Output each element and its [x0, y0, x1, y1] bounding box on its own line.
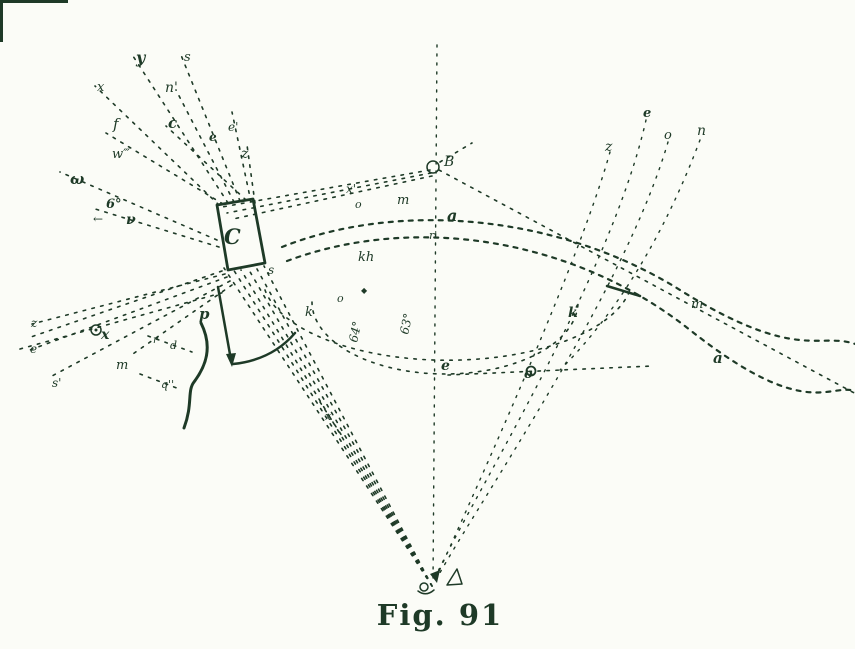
label-x: x — [100, 327, 110, 343]
rays-from-top-right — [434, 120, 700, 580]
label-f: f — [112, 115, 121, 133]
label-6°: 6° — [106, 197, 122, 212]
label-e: e — [209, 130, 217, 144]
label-c: c — [168, 114, 177, 132]
elliptical-arcs — [265, 290, 652, 375]
apex-ring — [420, 583, 428, 591]
label-ω: ω — [70, 170, 84, 188]
scan-edge-marks — [0, 0, 68, 42]
angle-brace-curve — [184, 323, 207, 428]
label-n: n — [697, 123, 706, 139]
ray-fan-lower-left — [20, 271, 342, 436]
figure-91-diagram: ysxn'fcee'w‴zω6°←νzes'xmrdq''xCspk64°63°… — [0, 0, 855, 649]
apex-triangle — [447, 569, 462, 585]
label-a: a — [713, 349, 723, 367]
label-k: k — [305, 305, 313, 320]
label-x: x — [97, 80, 105, 95]
label-s': s' — [52, 376, 61, 390]
label-s: s — [184, 50, 191, 65]
label-s: s — [268, 263, 274, 277]
label-m: m — [397, 193, 409, 208]
label-w‴: w‴ — [112, 147, 130, 162]
label-x': x' — [346, 182, 356, 196]
label-y: y — [135, 48, 147, 67]
label-q'': q'' — [161, 378, 174, 391]
label-ν: ν — [126, 212, 136, 228]
figure-caption: Fig. 91 — [330, 598, 550, 632]
label-e: e — [30, 342, 37, 356]
figure-canvas: ysxn'fcee'w‴zω6°←νzes'xmrdq''xCspk64°63°… — [0, 0, 855, 649]
label-x: x — [325, 410, 332, 423]
label-B: B — [443, 154, 454, 170]
label-o: o — [664, 128, 672, 143]
label-kh: kh — [358, 250, 374, 265]
label-k: k — [568, 305, 578, 321]
label-e: e — [441, 358, 450, 374]
label-n': n' — [165, 80, 178, 96]
point-B-ring — [427, 161, 439, 173]
apex-arrowhead — [430, 570, 440, 583]
label-z: z — [240, 146, 249, 162]
label-e': e' — [228, 120, 238, 134]
label-z: z — [30, 316, 38, 330]
label-a: a — [447, 206, 457, 225]
vertical-axis-line — [433, 45, 437, 583]
label-◆: ◆ — [361, 286, 368, 295]
label-64°: 64° — [346, 320, 364, 344]
label-o: o — [524, 367, 533, 382]
label-e: e — [643, 106, 651, 121]
label-C: C — [224, 224, 241, 249]
crossing-tick — [607, 286, 640, 296]
incident-ray-bundle — [222, 143, 855, 395]
label-d: d — [170, 339, 177, 352]
label-o: o — [337, 292, 344, 305]
label-p: p — [199, 305, 210, 323]
label-63°: 63° — [397, 312, 415, 336]
label-z: z — [604, 139, 613, 155]
label-m: m — [116, 358, 128, 373]
label-m: m — [691, 297, 703, 312]
label-←: ← — [93, 212, 103, 226]
label-o: o — [355, 198, 362, 211]
label-r': r' — [429, 229, 437, 242]
